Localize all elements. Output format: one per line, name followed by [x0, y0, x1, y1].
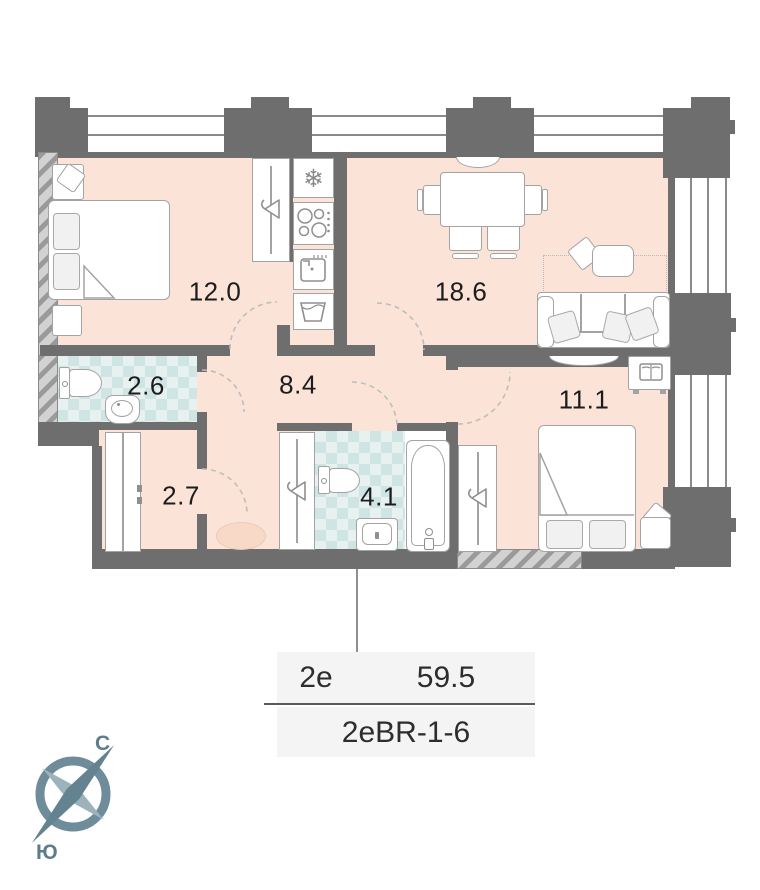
room-area-bath-big: 4.1: [360, 482, 398, 513]
bed-pillow: [53, 213, 80, 250]
entry-rug: [216, 522, 266, 550]
layout-code-cell: 2eBR-1-6: [342, 716, 470, 750]
bed-pillow: [53, 253, 80, 290]
room-area-hall: 8.4: [279, 370, 317, 401]
dining-chair-bottom-2-base: [490, 253, 517, 259]
kitchen-bottom-stub: [277, 325, 290, 356]
bath-small-right-wall-top: [197, 355, 207, 372]
facade-pillar-1: [70, 108, 88, 157]
bathtub-tap: [424, 538, 434, 550]
hanger-icon: [465, 481, 491, 515]
dining-chair-bottom-1-base: [452, 253, 479, 259]
wardrobe-room-right-wall-top: [197, 430, 207, 469]
toilet-flush-dot: [62, 381, 68, 387]
dining-table: [440, 172, 525, 227]
stove: [293, 202, 334, 245]
sofa-cushion-divider: [580, 294, 582, 332]
laundry-basket-icon: [294, 294, 332, 328]
bath-big-top-wall-a: [277, 423, 352, 431]
floor-plan-page: ❄: [0, 0, 760, 890]
dining-chair-right-back: [542, 189, 548, 211]
top-window-band: [40, 115, 727, 157]
room-area-bedroom2: 11.1: [559, 385, 610, 416]
facade-pillar-2: [224, 108, 312, 157]
flat-type-cell: 2e: [299, 661, 332, 695]
bathtub-drain: [425, 528, 433, 536]
nightstand-2: [640, 517, 671, 549]
facade-pillar-3: [446, 108, 534, 157]
toilet2-flush-dot: [321, 478, 327, 484]
hanger-icon: [284, 474, 310, 508]
wardrobe-room-right-wall-bottom: [197, 514, 207, 549]
toilet-bowl: [69, 369, 102, 397]
kitchen-sink: [293, 249, 334, 290]
nightstand: [52, 305, 82, 336]
total-area-cell: 59.5: [417, 661, 475, 695]
hall-top-wall-b: [277, 345, 375, 356]
left-lower-wall: [92, 446, 102, 553]
closet-handle: [137, 497, 142, 504]
info-table-divider: [264, 703, 535, 705]
bottom-shared-wall-hatched: [457, 549, 582, 569]
bed2-pillow: [546, 520, 583, 549]
book-icon: [638, 361, 664, 383]
room-area-bedroom: 12.0: [189, 277, 242, 308]
bedroom2-left-wall-stub: [446, 345, 458, 370]
compass-south-label: Ю: [36, 841, 58, 865]
sink-icon: [294, 250, 332, 288]
toilet2-bowl: [329, 468, 360, 493]
closet-divider: [122, 432, 124, 552]
desk-foot: [660, 390, 666, 394]
facade-pillar-right-mid-notch: [724, 318, 736, 332]
dining-chair-bottom-1: [449, 224, 482, 251]
stove-burners-icon: [294, 203, 332, 243]
closet-handle: [137, 485, 142, 492]
top-window-mullion: [40, 134, 727, 136]
facade-pillar-right-bottom-notch: [724, 518, 736, 532]
facade-pillar-4-notch: [724, 120, 735, 134]
dining-chair-bottom-2: [487, 224, 520, 251]
outside-cutout: [30, 446, 92, 558]
compass-north-label: С: [95, 732, 110, 756]
facade-pillar-1-top: [35, 97, 70, 157]
washbasin-dot: [117, 403, 120, 406]
coffee-table: [592, 245, 634, 277]
washbasin-big-dot: [375, 532, 379, 539]
hanger-icon: [258, 192, 284, 226]
snowflake-icon: ❄: [303, 165, 324, 193]
kitchen-right-wall: [334, 157, 347, 352]
washbasin-small-bowl: [111, 400, 133, 417]
bottom-wall: [92, 549, 675, 569]
bed2-pillow: [589, 520, 626, 549]
fridge: ❄: [293, 158, 334, 198]
desk-foot: [633, 390, 639, 394]
laundry-basket-cabinet: [293, 293, 334, 330]
room-area-living: 18.6: [435, 277, 488, 308]
room-area-bath-small: 2.6: [127, 371, 165, 402]
top-interior-wall: [40, 152, 672, 158]
room-area-wardrobe: 2.7: [162, 481, 200, 512]
